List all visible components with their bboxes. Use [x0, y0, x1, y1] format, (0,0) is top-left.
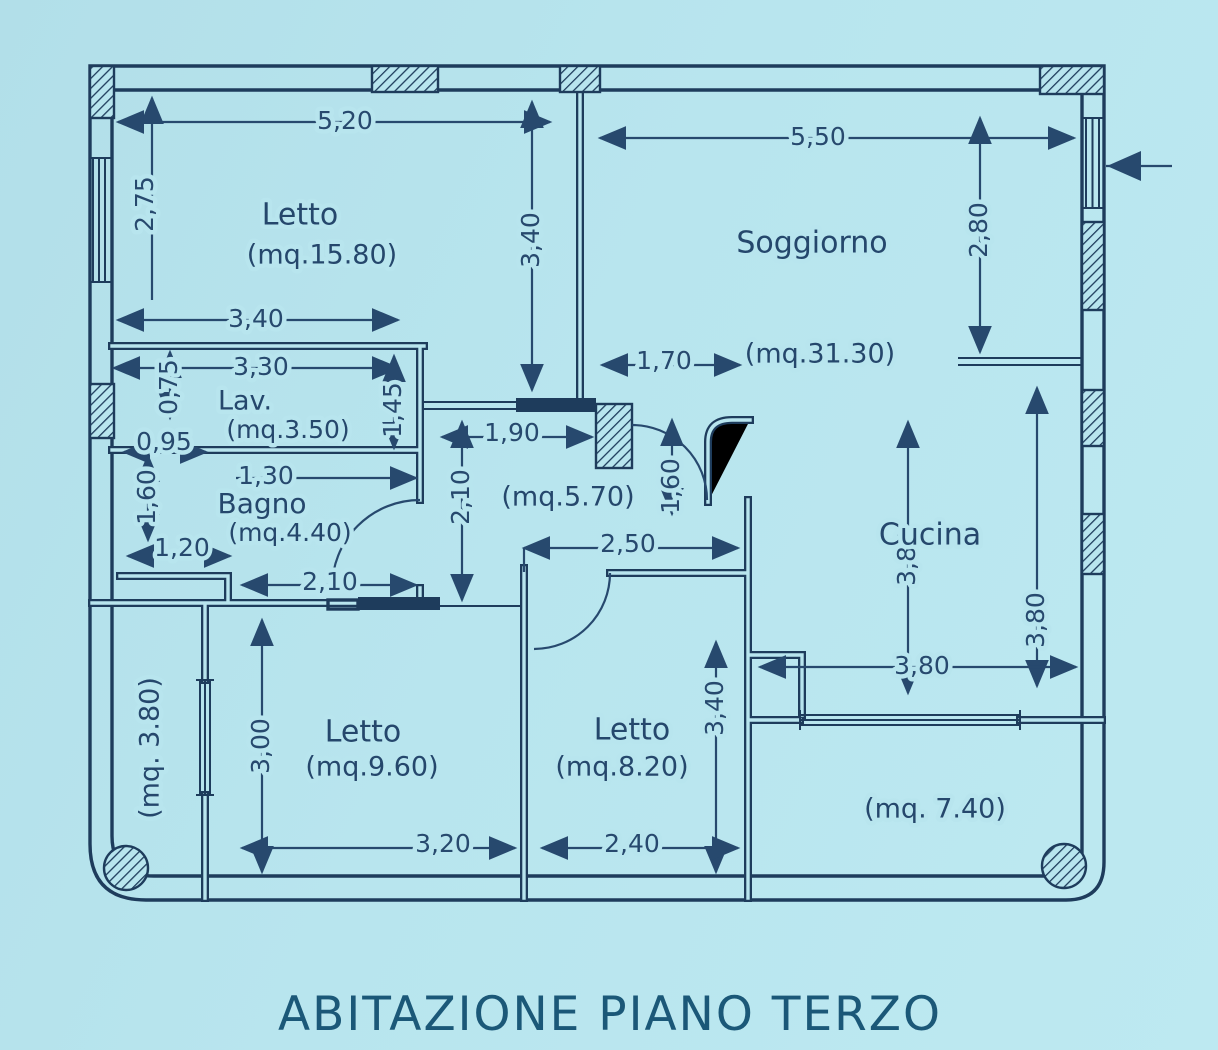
dim-cucina-height-right: 3,80: [1021, 592, 1050, 648]
window-balcony-left: [196, 680, 214, 795]
corner-pad-bottom-left: [104, 846, 148, 890]
dim-lav-width: 3,30: [233, 352, 289, 381]
dim-lav-height: 0,75: [154, 359, 183, 415]
dim-letto2-height: 3,00: [246, 718, 275, 774]
dim-letto1-width: 5,20: [317, 106, 373, 135]
dim-cucina-width: 3,80: [894, 651, 950, 680]
dim-corridoio-width3: 2,50: [600, 529, 656, 558]
floor-plan-drawing: 5,20 5,50 2,75 3,40 3,40 3,30 0,75 0,95 …: [0, 0, 1218, 1050]
dim-ingresso-height: 2,80: [964, 202, 993, 258]
dim-lav-right: 1,45: [378, 382, 407, 438]
dim-bagno-width3: 2,10: [302, 567, 358, 596]
room-label-letto2: Letto: [325, 715, 402, 750]
dim-letto1-height: 2,75: [130, 176, 159, 232]
dim-divider-height: 3,40: [516, 212, 545, 268]
room-area-balcone-dx: (mq. 7.40): [864, 794, 1006, 825]
dim-nicchia-height: 1,60: [132, 469, 161, 525]
divider-soggiorno-cucina: [958, 358, 1082, 365]
room-area-soggiorno: (mq.31.30): [745, 339, 895, 370]
plan-title: ABITAZIONE PIANO TERZO: [278, 987, 942, 1042]
window-hatch-left: [90, 384, 114, 438]
room-area-letto1: (mq.15.80): [247, 240, 397, 271]
corner-pad-bottom-right: [1042, 844, 1086, 888]
entrance-door-right-wall: [1082, 118, 1104, 208]
dim-letto2-width: 3,20: [415, 829, 471, 858]
window-hatch-right-1: [1082, 222, 1104, 310]
dim-corridoio-height: 2,10: [446, 469, 475, 525]
dim-letto1-south: 3,40: [228, 304, 284, 333]
dim-nicchia-width: 0,95: [136, 427, 192, 456]
pillar-hatch: [596, 404, 632, 468]
room-area-letto2: (mq.9.60): [305, 752, 438, 783]
room-area-balcone-sx: (mq. 3.80): [135, 677, 166, 819]
room-label-letto1: Letto: [262, 198, 339, 233]
dim-corridoio-width1: 1,90: [484, 418, 540, 447]
glazed-partition-corridor: [424, 402, 516, 409]
floor-plan-page: 5,20 5,50 2,75 3,40 3,40 3,30 0,75 0,95 …: [0, 0, 1218, 1050]
room-area-disimpegno: (mq.5.70): [501, 482, 634, 513]
window-hatch-right-2: [1082, 390, 1104, 446]
room-label-bagno: Bagno: [217, 487, 306, 520]
window-hatch-top-2: [560, 66, 600, 92]
window-hatch-top-right-corner: [1040, 66, 1104, 94]
door-arc-letto3: [534, 573, 610, 649]
window-hatch-top-left-corner: [90, 66, 114, 118]
dim-letto3-width: 2,40: [604, 829, 660, 858]
dim-bagno-width1: 1,30: [238, 461, 294, 490]
dim-letto3-height: 3,40: [700, 680, 729, 736]
window-hatch-right-3: [1082, 514, 1104, 574]
window-balcony-right: [800, 710, 1020, 730]
room-area-lav: (mq.3.50): [226, 415, 349, 444]
room-label-soggiorno: Soggiorno: [736, 226, 887, 261]
dim-corridoio-width2: 1,70: [636, 346, 692, 375]
wall-bar-corridor: [516, 398, 596, 412]
window-hatch-top-1: [372, 66, 438, 92]
entrance-arrow-icon: [1106, 151, 1172, 181]
sliding-door-letto2: [358, 597, 440, 610]
dim-porta-height: 1,60: [656, 458, 685, 514]
room-label-lav: Lav.: [218, 386, 272, 417]
room-area-letto3: (mq.8.20): [555, 752, 688, 783]
window-left-wall: [90, 158, 112, 282]
dim-soggiorno-width: 5,50: [790, 122, 846, 151]
dim-bagno-width2: 1,20: [154, 533, 210, 562]
room-area-bagno: (mq.4.40): [228, 518, 351, 547]
room-label-letto3: Letto: [594, 713, 671, 748]
room-label-cucina: Cucina: [879, 518, 981, 553]
